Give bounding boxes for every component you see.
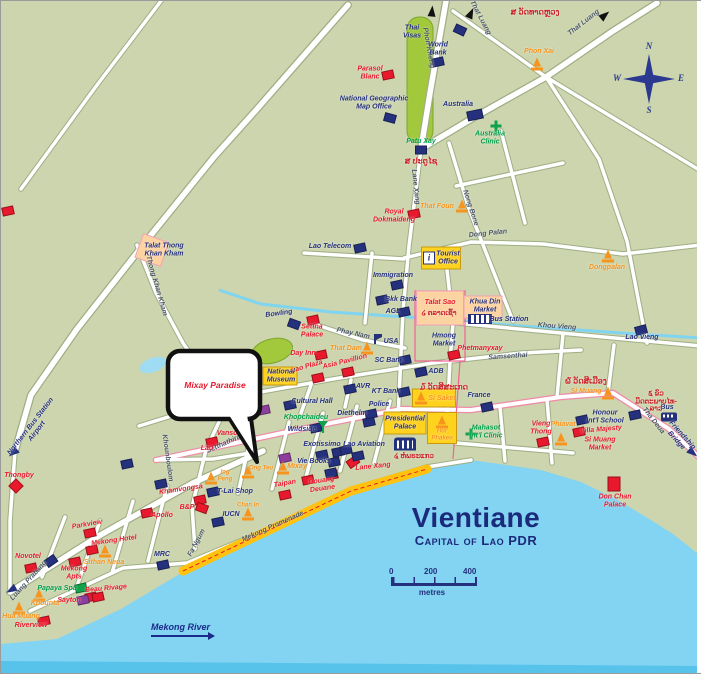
label-patu-xay: Patu Xay	[406, 138, 436, 146]
compass-star-icon	[623, 52, 675, 104]
label-exotissimo: Exotissimo	[303, 441, 340, 449]
scale-ruler	[391, 577, 477, 586]
compass-north: N	[646, 41, 653, 51]
label-fa-ngum: Fa Ngum	[187, 528, 208, 558]
label-tha-deua: Tha Deua	[640, 406, 665, 436]
label-mrc: MRC	[154, 551, 170, 559]
label-mekong-hotel: Mekong Hotel	[91, 534, 138, 548]
label-bus: Bus	[660, 404, 673, 412]
label-bowling: Bowling	[265, 308, 293, 319]
label-friendship: Friendship Bridge	[661, 420, 696, 457]
scale-bar: 0 200 400 metres	[391, 567, 491, 597]
label-hua-muang: Hua Muang	[2, 613, 40, 621]
label-phon-kheng: Phon Kheng	[421, 27, 436, 69]
compass-west: W	[613, 73, 621, 83]
label-immigration: Immigration	[373, 272, 413, 280]
label-samsenthai: Samsenthai	[488, 352, 528, 362]
label-mahasot: Mahasot Int'l Clinic	[469, 424, 502, 439]
label-si-saket: Si Saket	[428, 395, 455, 403]
label-don-chan: Don Chan Palace	[598, 493, 631, 508]
label-phon-xai: Phon Xai	[524, 48, 554, 56]
label-layer: That LuangThat LuangPhon KhengLane XangN…	[1, 1, 701, 673]
label-: ໔ ຫໍພຣະແກວ	[394, 453, 434, 461]
label-riverview: Riverview	[15, 622, 48, 630]
label-parasol: Parasol Blanc	[357, 65, 382, 80]
vientiane-tourist-map: That LuangThat LuangPhon KhengLane XangN…	[0, 0, 701, 674]
label-lao: Lao	[201, 445, 213, 453]
label-talat-thong: Talat Thong Khan Kham	[144, 242, 183, 257]
label-adb: ADB	[428, 368, 443, 376]
label-: ໒ ຕລາດເຊົ້າ	[421, 310, 456, 318]
label-bkk-bank: Bkk Bank	[385, 296, 417, 304]
label-chan-in: Chan In	[237, 503, 259, 510]
label-lane-xang: Lane Xang	[355, 461, 391, 472]
label-khopchaideu: Khopchaideu	[284, 414, 328, 422]
label-t-lai-shop: T-Lai Shop	[217, 488, 253, 496]
label-dongpalan: Dongpalan	[589, 264, 625, 272]
label-phay-nam: Phay Nam	[336, 327, 371, 342]
label-northern-bus-station: Northern Bus Station Airport	[6, 397, 61, 462]
label-hor: Hor Phakeo	[431, 428, 452, 441]
label-sithan-neua: Sithan Neua	[84, 559, 124, 567]
label-settha: Settha Palace	[301, 323, 323, 338]
label-khamvongsa: Khamvongsa	[159, 483, 204, 497]
map-title-block: Vientiane Capital of Lao PDR	[386, 504, 566, 550]
label-nong-bone: Nong Bone	[461, 189, 480, 227]
label-si-muang: Si Muang Market	[584, 436, 615, 451]
label-presidential: Presidential Palace	[385, 415, 425, 430]
label-sc-bank: SC Bank	[375, 357, 404, 365]
label-mekong-promenade: Mekong Promenade	[241, 510, 305, 544]
label-luang-prabang: Luang Prabang	[9, 559, 49, 602]
label-that-dam: That Dam	[330, 345, 362, 353]
label-taipan: Taipan	[273, 478, 296, 489]
label-thongby: Thongby	[4, 472, 34, 480]
label-lao-telecom: Lao Telecom	[309, 243, 352, 251]
label-asia-pavillion: Asia Pavillion	[322, 353, 368, 371]
label-: ໓ ວັດສີສະເກດ	[420, 384, 468, 393]
label-apollo: Apollo	[151, 512, 173, 520]
label-si-muang: Si Muang	[570, 388, 601, 396]
label-that-luang: That Luang	[567, 8, 601, 37]
label-khou-vieng: Khou Vieng	[537, 322, 576, 332]
label-vansoke: Vansoke	[217, 430, 246, 438]
compass-east: E	[678, 73, 684, 83]
label-usa: USA	[384, 338, 399, 346]
label-that-foun: That Foun	[420, 203, 454, 211]
label-agl: AGL	[386, 308, 401, 316]
compass-south: S	[646, 105, 651, 115]
label-hmong: Hmong Market	[432, 332, 456, 347]
label-sayton: Sayton	[57, 597, 80, 605]
label-lane-xang: Lane Xang	[409, 169, 420, 205]
label-lao-plaza: Lao Plaza	[290, 359, 323, 375]
label-that-luang: That Luang	[468, 0, 492, 36]
map-subtitle: Capital of Lao PDR	[386, 532, 566, 550]
scale-unit: metres	[391, 588, 473, 597]
label-talat-sao: Talat Sao	[425, 299, 456, 307]
river-flow-arrow-icon	[151, 635, 209, 637]
label-tourist: Tourist Office	[436, 250, 459, 265]
label-b-p: B&P	[180, 504, 195, 512]
label-khounboulom: Khounboulom	[160, 434, 174, 482]
label-parkview: Parkview	[71, 519, 102, 532]
label-mekong: Mekong Apts	[61, 565, 87, 580]
label-mixay: Mixay	[287, 463, 306, 471]
label-avr: AVR	[356, 383, 370, 391]
label-vayakorn: Vayakorn	[228, 405, 260, 421]
scale-tick-200: 200	[424, 567, 437, 576]
label-thong-khan-kham: Thong Khan Kham	[144, 255, 169, 317]
label-australia: Australia Clinic	[475, 130, 505, 145]
label-ong-teu: Ong Teu	[249, 466, 273, 473]
label-day-inn: Day Inn	[290, 350, 315, 358]
label-diethelm: Diethelm	[337, 410, 367, 418]
label-lao-aviation: Lao Aviation	[343, 441, 385, 449]
label-vie-books: Vie Books	[297, 458, 331, 466]
label-phiavat: Phiavat	[551, 421, 576, 429]
label-iucn: IUCN	[222, 511, 239, 519]
mekong-river-label: Mekong River	[151, 622, 210, 637]
label-khounta: Khounta	[31, 600, 59, 608]
callout-label: Mixay Paradise	[184, 380, 245, 390]
label-ing: Ing Peng	[218, 469, 233, 482]
label-: ສ ປະຕູໄຊ	[405, 158, 437, 167]
label-cultural-hall: Cultural Hall	[291, 398, 332, 406]
label-thai: Thai Visas	[403, 24, 421, 39]
label-world: World Bank	[428, 41, 448, 56]
label-royal: Royal Dokmaideng	[373, 208, 415, 223]
label-kt-bank: KT Bank	[372, 388, 400, 396]
label-villa-majesty: Villa Majesty	[580, 424, 622, 435]
river-name: Mekong River	[151, 622, 210, 632]
label-police: Police	[369, 401, 390, 409]
label-australia: Australia	[443, 101, 473, 109]
label-beau-rivage: Beau Rivage	[85, 583, 128, 594]
scale-tick-0: 0	[389, 567, 393, 576]
label-: ສ ວັດທາດຫຼວງ	[511, 9, 560, 18]
label-france: France	[468, 392, 491, 400]
label-: ໕ ຂົວມິດຕະພາບໄທ-ລາວ	[633, 390, 679, 413]
label-vieng: Vieng Thong	[530, 420, 551, 435]
label-: ໖ ວັດສີເມືອງ	[565, 378, 606, 387]
label-novotel: Novotel	[15, 553, 41, 561]
compass-rose: N E S W	[623, 52, 675, 104]
label-dong-palan: Dong Palan	[468, 228, 507, 240]
label-setthathirat: Setthathirat	[206, 433, 245, 456]
label-wildside: Wildside	[288, 426, 317, 434]
label-douang: Douang Deuane	[308, 476, 336, 495]
label-phetmanyxay: Phetmanyxay	[457, 345, 502, 353]
label-bus-station: Bus Station	[490, 316, 529, 324]
label-national: National Museum	[267, 368, 295, 383]
label-lao-vieng: Lao Vieng	[625, 334, 658, 342]
map-title: Vientiane	[386, 504, 566, 532]
label-khua-din: Khua Din Market	[470, 298, 501, 313]
label-honour: Honour Int'l School	[586, 409, 623, 424]
label-national-geographic: National Geographic Map Office	[340, 95, 408, 110]
label-papaya-spa: Papaya Spa	[37, 585, 76, 593]
scale-tick-400: 400	[463, 567, 476, 576]
